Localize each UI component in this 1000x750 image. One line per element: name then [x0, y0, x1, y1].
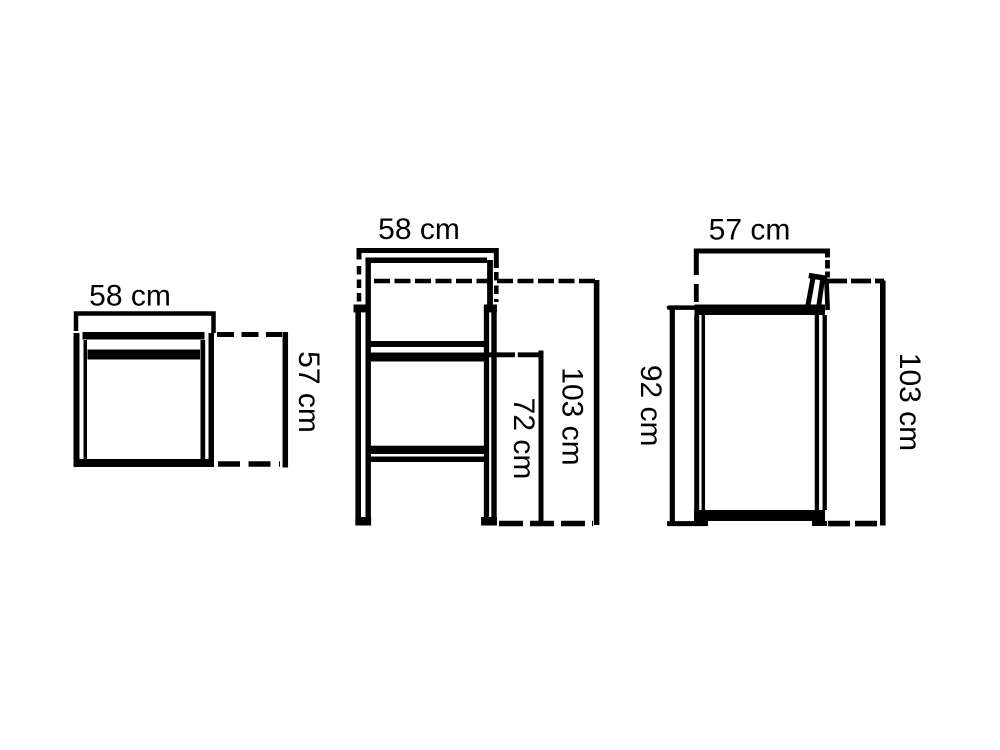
- svg-text:58 cm: 58 cm: [378, 213, 460, 246]
- svg-text:72 cm: 72 cm: [507, 398, 540, 480]
- svg-text:103 cm: 103 cm: [893, 353, 926, 451]
- svg-text:58 cm: 58 cm: [89, 280, 171, 313]
- svg-text:92 cm: 92 cm: [634, 365, 667, 447]
- svg-text:57 cm: 57 cm: [292, 351, 325, 433]
- svg-text:103 cm: 103 cm: [556, 367, 589, 465]
- svg-text:57 cm: 57 cm: [709, 214, 791, 247]
